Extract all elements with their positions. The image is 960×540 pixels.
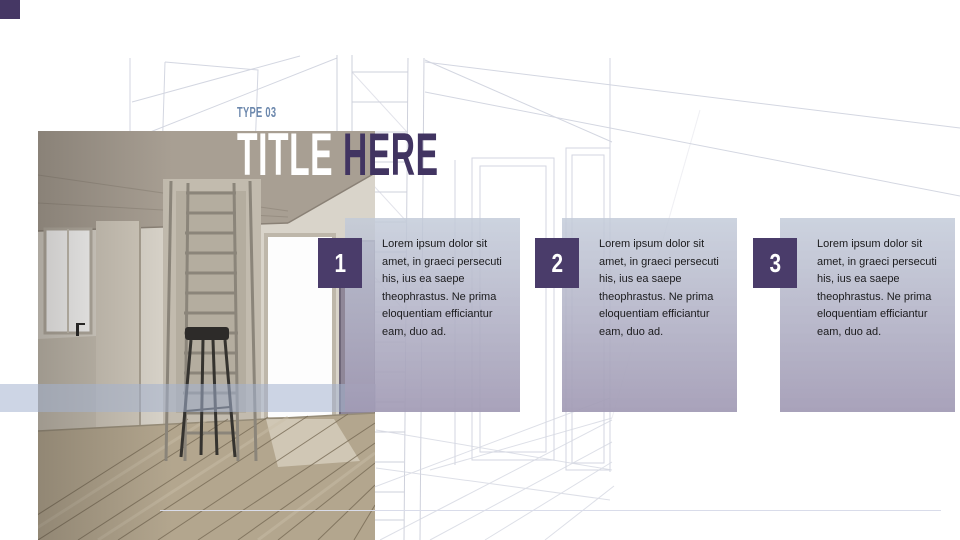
card-1-text: Lorem ipsum dolor sit amet, in graeci pe… [382, 236, 510, 341]
presentation-slide: Lorem ipsum dolor sit amet, nam velit ev… [0, 0, 960, 540]
photo-vignette [38, 131, 375, 540]
card-3-text: Lorem ipsum dolor sit amet, in graeci pe… [817, 236, 945, 341]
card-2-number: 2 [551, 248, 563, 279]
card-2: 2 Lorem ipsum dolor sit amet, in graeci … [562, 218, 737, 412]
accent-band [0, 384, 376, 412]
slide-title: TITLE HERE [237, 125, 439, 185]
interior-photo-art [38, 131, 375, 540]
footer-divider-line [160, 510, 941, 511]
card-1: 1 Lorem ipsum dolor sit amet, in graeci … [345, 218, 520, 412]
title-word-white: TITLE [237, 121, 333, 188]
card-1-number-badge: 1 [318, 238, 362, 288]
card-2-text: Lorem ipsum dolor sit amet, in graeci pe… [599, 236, 727, 341]
card-2-number-badge: 2 [535, 238, 579, 288]
interior-photo: Lorem ipsum dolor sit amet, nam velit ev… [38, 131, 375, 540]
corner-accent-square [0, 0, 20, 19]
card-1-number: 1 [334, 248, 346, 279]
card-3-number-badge: 3 [753, 238, 797, 288]
eyebrow-label: TYPE 03 [237, 104, 460, 121]
card-3: 3 Lorem ipsum dolor sit amet, in graeci … [780, 218, 955, 412]
slide-header: TYPE 03 TITLE HERE [237, 104, 597, 185]
title-word-accent: HERE [343, 121, 439, 188]
card-3-number: 3 [769, 248, 781, 279]
